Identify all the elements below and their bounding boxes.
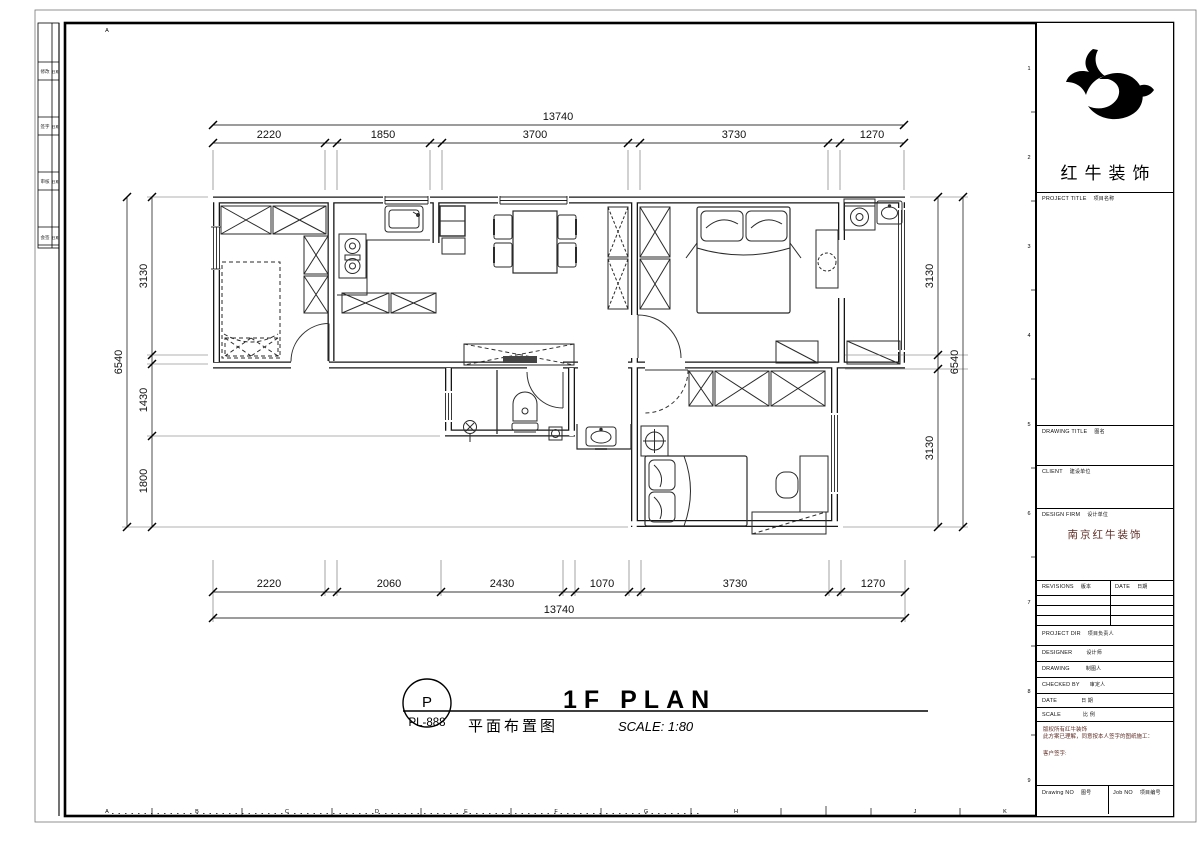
kitchen-lower-cabinet xyxy=(342,293,436,313)
window-balcony-right xyxy=(896,208,906,352)
window-bedroom2-right xyxy=(829,413,839,494)
svg-text:2220: 2220 xyxy=(257,578,281,590)
window-bedroom1-left xyxy=(211,226,221,270)
hallway-cabinet xyxy=(608,207,628,309)
field-designer: DESIGNER设计师 xyxy=(1042,649,1102,656)
svg-text:3130: 3130 xyxy=(924,264,936,288)
floor-plan-canvas: 修改日期 签字日期 审核日期 会签日期 A A B C D E F G H J … xyxy=(0,0,1200,842)
dining-table xyxy=(494,211,576,273)
dim-bottom-overall: 13740 xyxy=(544,604,575,616)
svg-text:K: K xyxy=(1003,809,1007,815)
svg-text:5: 5 xyxy=(1027,422,1030,428)
fold-strip xyxy=(38,23,59,248)
svg-text:E: E xyxy=(464,809,468,815)
svg-text:1: 1 xyxy=(1027,66,1030,72)
plan-scale: SCALE: 1:80 xyxy=(618,719,694,734)
master-desk xyxy=(816,230,838,288)
svg-text:1270: 1270 xyxy=(861,578,885,590)
svg-text:2430: 2430 xyxy=(490,578,514,590)
field-project-title: PROJECT TITLE项目名称 xyxy=(1042,195,1114,202)
svg-text:1270: 1270 xyxy=(860,129,884,141)
bedroom2-wardrobe xyxy=(689,371,825,406)
design-firm-name: 南京红牛装饰 xyxy=(1037,527,1173,542)
svg-text:F: F xyxy=(554,809,558,815)
field-drawing-no: Drawing NO图号 xyxy=(1042,789,1091,796)
svg-text:日期: 日期 xyxy=(52,69,60,74)
grid-letters-bottom: A B C D E F G H J K xyxy=(105,809,1007,815)
svg-text:3130: 3130 xyxy=(924,436,936,460)
door-bathroom xyxy=(527,372,563,408)
bedroom1-wardrobe xyxy=(221,206,328,313)
drawing-sheet: 修改日期 签字日期 审核日期 会签日期 A A B C D E F G H J … xyxy=(0,0,1200,842)
field-scale: SCALE比 例 xyxy=(1042,711,1095,718)
title-bubble-code: PL-888 xyxy=(408,717,445,729)
kitchen-counter xyxy=(337,206,430,295)
svg-text:6: 6 xyxy=(1027,511,1030,517)
door-bedroom2 xyxy=(645,370,688,413)
fold-strip-labels: 修改日期 签字日期 审核日期 会签日期 xyxy=(41,68,60,241)
svg-text:3700: 3700 xyxy=(523,129,547,141)
toilet xyxy=(512,392,538,432)
svg-text:D: D xyxy=(375,809,379,815)
fridge xyxy=(440,206,465,254)
bedroom1-bed xyxy=(222,262,280,358)
door-bedroom1 xyxy=(291,324,329,362)
vanity-basin xyxy=(577,424,631,449)
bedroom2-bed xyxy=(645,456,747,526)
plan-title-en: 1F PLAN xyxy=(563,686,716,714)
svg-text:3730: 3730 xyxy=(723,578,747,590)
brand-name: 红牛装饰 xyxy=(1037,159,1173,184)
window-bathroom-left xyxy=(443,391,453,422)
field-design-firm: DESIGN FIRM设计单位 xyxy=(1042,511,1108,518)
kitchen-stove xyxy=(339,234,366,278)
svg-text:签字: 签字 xyxy=(41,123,50,129)
master-bed xyxy=(686,207,801,313)
field-checked-by: CHECKED BY审定人 xyxy=(1042,681,1105,688)
field-drawing-title: DRAWING TITLE图名 xyxy=(1042,428,1105,435)
svg-text:8: 8 xyxy=(1027,689,1030,695)
svg-text:3730: 3730 xyxy=(722,129,746,141)
dim-right-overall: 6540 xyxy=(949,350,961,374)
svg-text:审核: 审核 xyxy=(41,178,50,185)
svg-text:3: 3 xyxy=(1027,244,1030,250)
master-low-cabinet xyxy=(776,341,818,363)
svg-text:1070: 1070 xyxy=(590,578,614,590)
field-drawing: DRAWING制图人 xyxy=(1042,665,1101,672)
grid-letter-top: A xyxy=(105,28,109,34)
disclaimer-line2: 此方案已理解，同意按本人签字的图纸施工： xyxy=(1043,732,1153,740)
bull-logo-icon xyxy=(1055,41,1155,136)
svg-text:C: C xyxy=(285,809,289,815)
grid-ticks-bottom xyxy=(112,806,960,816)
bedroom2-desk xyxy=(776,456,828,512)
door-master-bedroom xyxy=(638,315,681,358)
svg-text:2: 2 xyxy=(1027,155,1030,161)
svg-text:J: J xyxy=(914,809,917,815)
field-rev-date: DATE日期 xyxy=(1115,583,1147,590)
plan-title-cn: 平面布置图 xyxy=(468,718,558,735)
window-kitchen-top xyxy=(383,195,430,205)
bedroom2-vent-unit xyxy=(641,426,668,456)
field-date: DATE日 期 xyxy=(1042,697,1093,704)
dim-left-overall: 6540 xyxy=(113,350,125,374)
field-revisions: REVISIONS版本 xyxy=(1042,583,1091,590)
dim-top-overall: 13740 xyxy=(543,111,574,123)
window-living-top xyxy=(498,195,569,205)
balcony-low-cabinet xyxy=(847,341,900,364)
svg-text:1850: 1850 xyxy=(371,129,395,141)
brand-logo-area: 红牛装饰 xyxy=(1037,41,1173,141)
svg-text:4: 4 xyxy=(1027,333,1030,339)
svg-text:9: 9 xyxy=(1027,778,1030,784)
svg-text:1430: 1430 xyxy=(138,388,150,412)
title-bubble-letter: P xyxy=(422,694,432,711)
drawing-title-group: P PL-888 1F PLAN 平面布置图 SCALE: 1:80 xyxy=(403,679,928,735)
svg-text:A: A xyxy=(105,809,109,815)
svg-text:会签: 会签 xyxy=(41,234,50,241)
svg-text:日期: 日期 xyxy=(52,235,60,240)
master-wardrobe xyxy=(640,207,670,309)
svg-text:1800: 1800 xyxy=(138,469,150,493)
grid-numbers-right: 1 2 3 4 5 6 7 8 9 xyxy=(1027,66,1030,784)
svg-text:G: G xyxy=(644,809,648,815)
svg-text:H: H xyxy=(734,809,738,815)
balcony-washer xyxy=(844,199,875,230)
field-job-no: Job NO项目编号 xyxy=(1113,789,1161,796)
svg-text:2220: 2220 xyxy=(257,129,281,141)
svg-text:7: 7 xyxy=(1027,600,1030,606)
svg-text:日期: 日期 xyxy=(52,124,60,129)
svg-text:日期: 日期 xyxy=(52,179,60,184)
client-signature-label: 客户签字: xyxy=(1043,749,1067,757)
svg-text:B: B xyxy=(195,809,199,815)
svg-text:2060: 2060 xyxy=(377,578,401,590)
svg-text:修改: 修改 xyxy=(41,68,50,75)
title-block: 红牛装饰 PROJECT TITLE项目名称 DRAWING TITLE图名 C… xyxy=(1035,23,1173,816)
floor-plan xyxy=(211,195,906,534)
field-project-dir: PROJECT DIR项目负责人 xyxy=(1042,630,1114,637)
field-client: CLIENT建设单位 xyxy=(1042,468,1091,475)
svg-text:3130: 3130 xyxy=(138,264,150,288)
